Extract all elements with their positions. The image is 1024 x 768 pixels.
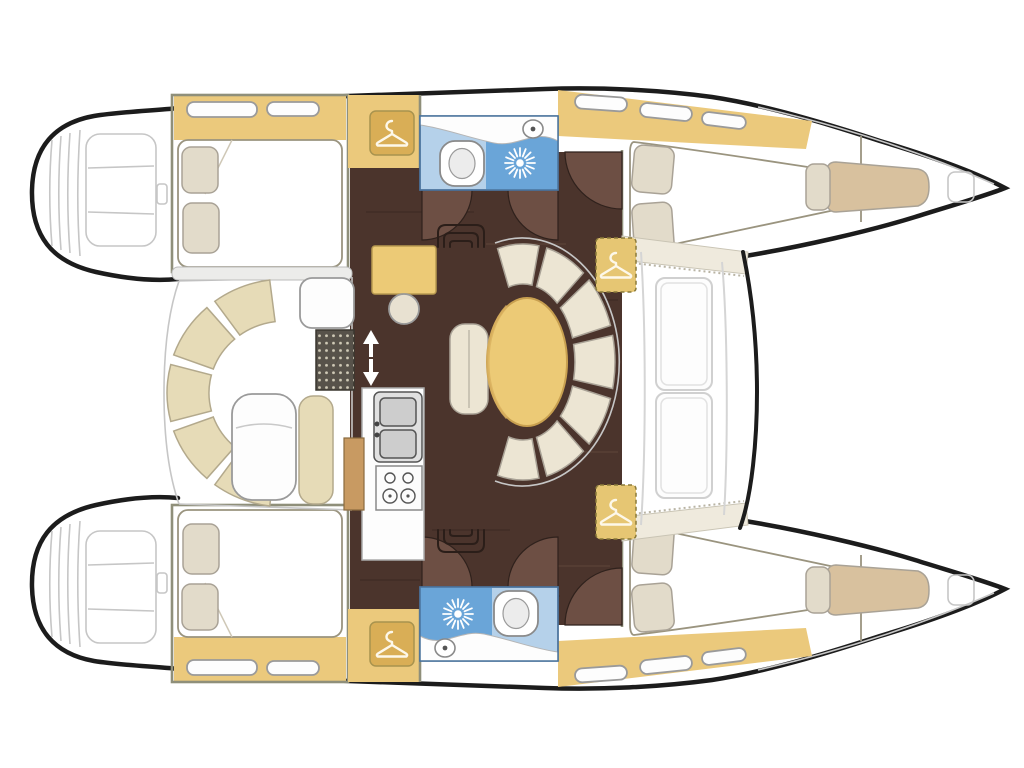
sink-basin bbox=[380, 398, 416, 426]
coachroof-front-outline bbox=[740, 252, 757, 528]
bench-cushion bbox=[167, 365, 211, 422]
cockpit-table bbox=[232, 394, 296, 500]
basin-drain bbox=[531, 127, 536, 132]
berth-cushion bbox=[827, 162, 929, 212]
toilet-bowl bbox=[449, 149, 475, 179]
pillow bbox=[183, 203, 219, 253]
sliding-door bbox=[344, 438, 364, 510]
teak-grate-dots bbox=[316, 330, 354, 390]
catamaran-floor-plan: Catamaran interior floor plan, top-down … bbox=[0, 0, 1024, 768]
pillow bbox=[182, 147, 218, 193]
stern-swim-steps bbox=[50, 130, 167, 256]
sink-basin bbox=[380, 430, 416, 458]
faucet-dot bbox=[375, 422, 380, 427]
anchor-locker-hatch bbox=[948, 172, 974, 202]
aft-cabin bbox=[172, 95, 348, 272]
pillow bbox=[806, 164, 830, 210]
bow-berth bbox=[806, 136, 974, 222]
pillow bbox=[631, 144, 675, 194]
side-bench bbox=[299, 396, 333, 504]
locker-slot bbox=[575, 94, 628, 112]
stove-icon bbox=[376, 466, 422, 510]
stool bbox=[389, 294, 419, 324]
galley bbox=[362, 388, 424, 560]
locker-slot bbox=[187, 102, 257, 117]
starboard-bathroom bbox=[420, 587, 558, 661]
foredeck bbox=[622, 236, 757, 541]
faucet-dot bbox=[375, 433, 380, 438]
deck-window bbox=[656, 278, 712, 390]
deck-window bbox=[656, 393, 712, 498]
windshield-line bbox=[722, 262, 727, 515]
locker-slot bbox=[267, 102, 319, 116]
chart-desk bbox=[372, 246, 436, 294]
windshield-line bbox=[641, 252, 645, 525]
cockpit bbox=[164, 267, 364, 510]
settee-cushion bbox=[574, 335, 615, 388]
port-bathroom bbox=[420, 116, 558, 190]
cockpit-seat bbox=[300, 278, 354, 328]
